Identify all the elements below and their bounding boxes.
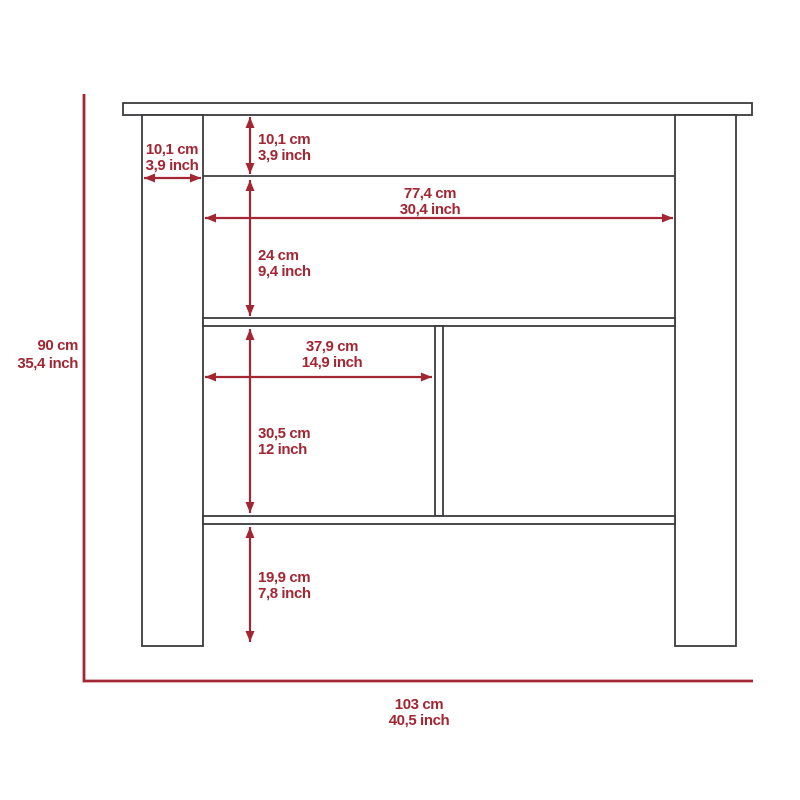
cubby-width-inch: 14,9 inch bbox=[302, 354, 363, 371]
overall-height-cm: 90 cm bbox=[37, 337, 78, 354]
cubby-height-inch: 12 inch bbox=[258, 441, 307, 458]
interior-width-inch: 30,4 inch bbox=[400, 201, 461, 218]
overall-height-inch: 35,4 inch bbox=[17, 355, 78, 372]
bottom-clearance-inch: 7,8 inch bbox=[258, 585, 311, 602]
leg-width-label: 10,1 cm 3,9 inch bbox=[146, 141, 199, 174]
bottom-clearance-label: 19,9 cm 7,8 inch bbox=[258, 569, 311, 602]
cubby-height-cm: 30,5 cm bbox=[258, 425, 310, 442]
leg-width-cm: 10,1 cm bbox=[146, 141, 198, 158]
top-frame-height-cm: 10,1 cm bbox=[258, 131, 310, 148]
cubby-width-cm: 37,9 cm bbox=[306, 338, 358, 355]
top-frame-height-inch: 3,9 inch bbox=[258, 147, 311, 164]
left-leg bbox=[142, 115, 203, 646]
diagram-page: 10,1 cm 3,9 inch 10,1 cm 3,9 inch 77,4 c… bbox=[0, 0, 800, 800]
cubby-height-label: 30,5 cm 12 inch bbox=[258, 425, 310, 458]
overall-width-inch: 40,5 inch bbox=[389, 712, 450, 729]
leg-width-inch: 3,9 inch bbox=[146, 157, 199, 174]
countertop bbox=[123, 103, 752, 115]
interior-width-cm: 77,4 cm bbox=[404, 185, 456, 202]
overall-height-label: 90 cm 35,4 inch bbox=[17, 337, 78, 372]
right-leg bbox=[675, 115, 736, 646]
overall-width-label: 103 cm 40,5 inch bbox=[389, 696, 450, 729]
overall-width-cm: 103 cm bbox=[395, 696, 444, 713]
top-frame-height-label: 10,1 cm 3,9 inch bbox=[258, 131, 311, 164]
upper-shelf-height-inch: 9,4 inch bbox=[258, 263, 311, 280]
shelf-divider bbox=[435, 326, 443, 516]
upper-shelf-height-label: 24 cm 9,4 inch bbox=[258, 247, 311, 280]
middle-shelf bbox=[203, 318, 675, 326]
interior-width-label: 77,4 cm 30,4 inch bbox=[400, 185, 461, 218]
bottom-shelf bbox=[203, 516, 675, 524]
cubby-width-label: 37,9 cm 14,9 inch bbox=[302, 338, 363, 371]
bottom-clearance-cm: 19,9 cm bbox=[258, 569, 310, 586]
furniture-dimension-diagram: 10,1 cm 3,9 inch 10,1 cm 3,9 inch 77,4 c… bbox=[0, 0, 800, 800]
upper-shelf-height-cm: 24 cm bbox=[258, 247, 299, 264]
